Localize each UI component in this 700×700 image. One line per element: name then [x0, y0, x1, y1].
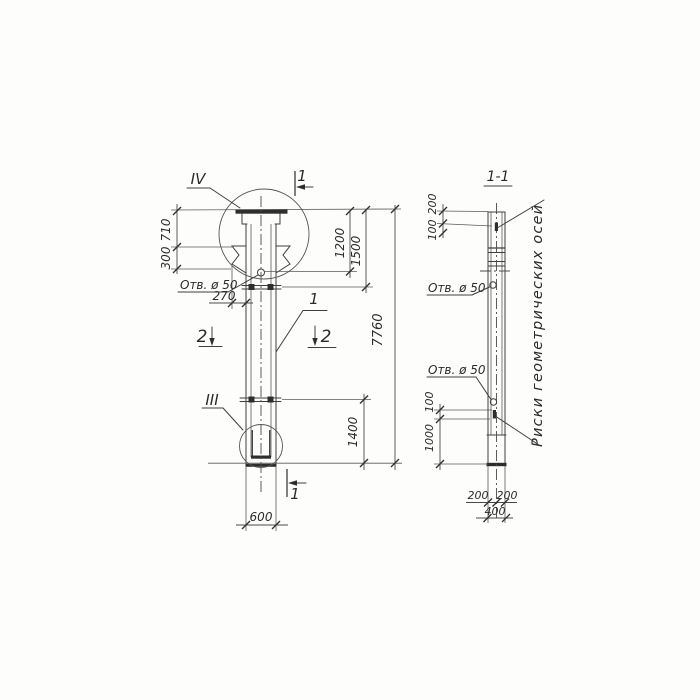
hole-label: Отв. ø 50 — [180, 278, 238, 292]
dim-710-300: 710 300 — [159, 204, 233, 274]
dim-1500: 1500 — [282, 206, 373, 293]
axis-note-label: Риски геометрических осей — [530, 204, 546, 447]
cap-plate — [236, 210, 288, 214]
dim-1000-label: 1000 — [423, 424, 436, 452]
dim-600-label: 600 — [250, 510, 273, 524]
axis-mark-lower — [493, 410, 496, 419]
dim-600: 600 — [236, 467, 288, 531]
dim-1500-label: 1500 — [349, 235, 363, 266]
section-view: 1-1 — [423, 169, 546, 523]
dim-1400-label: 1400 — [346, 416, 360, 447]
detail-marker-bottom-label: III — [205, 391, 219, 409]
dim-1200: 1200 — [265, 207, 357, 278]
dim-100-mid-label: 100 — [423, 392, 436, 413]
detail-marker-top-label: IV — [191, 170, 207, 188]
part-label: 1 — [309, 290, 319, 308]
dim-7760-label: 7760 — [371, 313, 386, 346]
dim-200-left-label: 200 — [468, 489, 489, 502]
dim-200-200-400: 200 200 400 — [466, 466, 518, 523]
dim-400-label: 400 — [485, 505, 506, 518]
axis-note: Риски геометрических осей — [496, 200, 546, 447]
dim-200-top-label: 200 — [426, 194, 439, 215]
dim-100-1000: 100 1000 — [423, 392, 492, 471]
section-cut-2-right-label: 2 — [321, 327, 332, 347]
dim-200-100-top: 200 100 — [426, 194, 492, 241]
dim-7760: 7760 — [371, 205, 399, 470]
section-title-label: 1-1 — [487, 169, 510, 185]
detail-marker-top: IV — [187, 170, 240, 208]
section-cut-1-top: 1 — [295, 167, 313, 196]
left-bracket-wing — [232, 246, 246, 273]
section-cut-2-left: 2 — [197, 327, 222, 347]
section-hole-lower-label: Отв. ø 50 — [428, 363, 486, 377]
dim-710-label: 710 — [159, 218, 173, 241]
upper-joint-line — [242, 284, 281, 290]
section-hole-callout-upper: Отв. ø 50 — [427, 281, 490, 295]
dim-1200-label: 1200 — [333, 227, 347, 258]
axis-mark-upper — [495, 223, 498, 232]
dim-300-label: 300 — [159, 246, 173, 269]
drawing-canvas: 710 300 270 1200 1500 — [0, 0, 700, 700]
dim-1400: 1400 — [282, 394, 371, 470]
section-cut-2-left-label: 2 — [197, 327, 208, 347]
section-cut-2-right: 2 — [308, 326, 336, 348]
dim-100-top-label: 100 — [426, 220, 439, 241]
section-cut-1-bottom-label: 1 — [290, 485, 300, 503]
section-cut-1-bottom: 1 — [287, 469, 306, 503]
section-hole-callout-lower: Отв. ø 50 — [427, 363, 491, 400]
section-title: 1-1 — [484, 169, 512, 186]
right-bracket-wing — [276, 246, 290, 273]
part-callout: 1 — [276, 290, 327, 352]
detail-marker-bottom: III — [202, 391, 243, 430]
elevation-view: 710 300 270 1200 1500 — [159, 167, 402, 531]
dim-200-right-label: 200 — [497, 489, 518, 502]
section-cut-1-top-label: 1 — [297, 167, 307, 185]
